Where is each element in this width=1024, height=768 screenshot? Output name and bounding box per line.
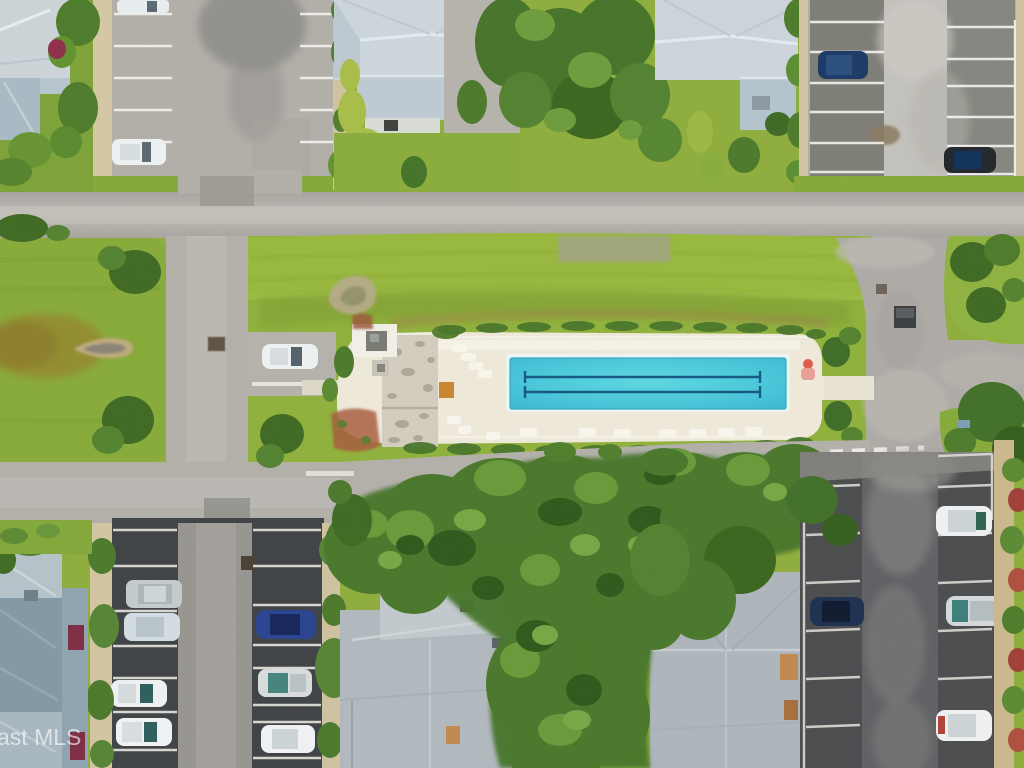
svg-text:ast MLS: ast MLS [0,724,81,750]
